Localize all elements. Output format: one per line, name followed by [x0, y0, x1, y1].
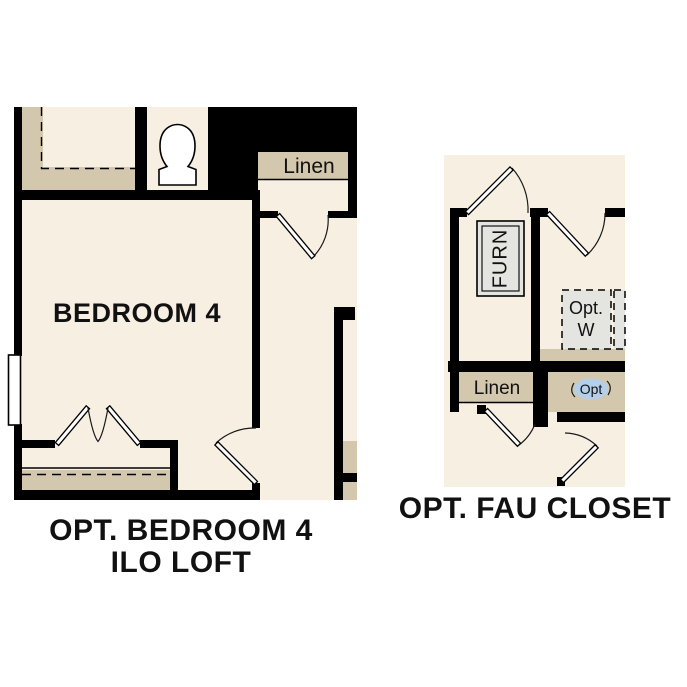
opt-marker-label: Opt	[580, 381, 603, 397]
bedroom-label: BEDROOM 4	[53, 298, 221, 328]
left-caption-line1: OPT. BEDROOM 4	[49, 514, 313, 547]
floor-plan-canvas: BEDROOM 4 Linen OPT. BEDROOM 4 ILO LOFT	[0, 0, 687, 687]
opt-dryer-box-partial	[614, 290, 625, 349]
window-symbol	[9, 355, 21, 425]
left-floor-plan: BEDROOM 4 Linen OPT. BEDROOM 4 ILO LOFT	[9, 107, 358, 579]
linen-label-left: Linen	[283, 155, 334, 178]
opt-washer-box: Opt. W	[562, 290, 611, 349]
right-floor-plan: FURN Opt. W Opt	[399, 155, 672, 525]
furn-label: FURN	[490, 229, 512, 289]
right-caption: OPT. FAU CLOSET	[399, 492, 672, 525]
left-caption-line2: ILO LOFT	[111, 546, 252, 579]
furnace-unit: FURN	[477, 221, 524, 296]
linen-label-right: Linen	[474, 378, 521, 399]
opt-washer-line2: W	[578, 320, 595, 340]
opt-washer-line1: Opt.	[569, 298, 603, 318]
toilet-icon	[159, 125, 196, 186]
closet-shelf	[22, 470, 170, 491]
